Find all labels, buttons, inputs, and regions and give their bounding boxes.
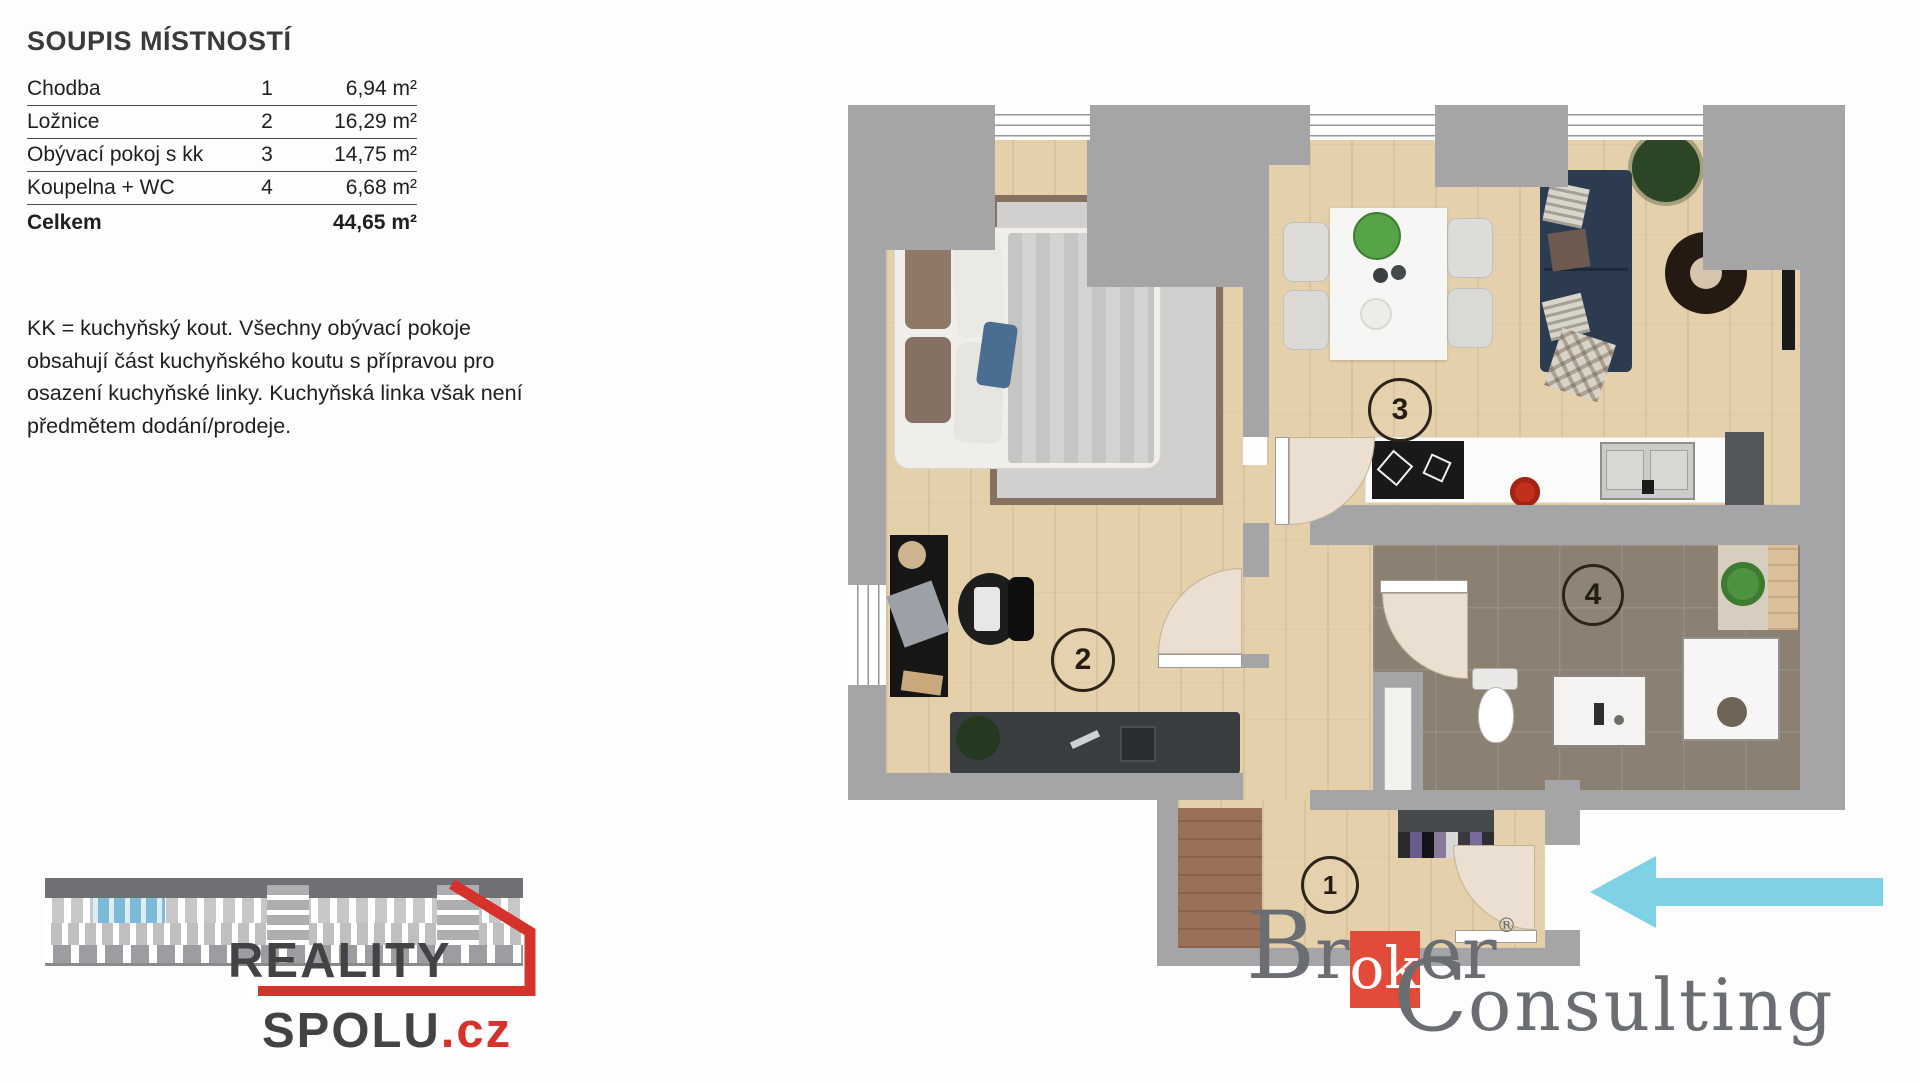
note-line: osazení kuchyňské linky. Kuchyňská linka… (27, 377, 523, 410)
bottle (1594, 703, 1604, 725)
kk-note: KK = kuchyňský kout. Všechny obývací pok… (27, 312, 523, 442)
sideboard (950, 712, 1240, 774)
house-outline-icon (440, 872, 545, 998)
soap (1614, 715, 1624, 725)
spolu-wordmark: SPOLU.cz (262, 1003, 512, 1059)
bathroom-vanity (1552, 675, 1647, 747)
dining-chair (1283, 290, 1329, 350)
clothes-item (1398, 832, 1410, 858)
building-blue-windows (93, 898, 165, 923)
room-name: Chodba (27, 77, 222, 101)
burner (1422, 453, 1451, 482)
table-total-row: Celkem 44,65 m² (27, 205, 417, 241)
bath-bench (1768, 542, 1798, 630)
room-label-bathroom: 4 (1562, 564, 1624, 626)
total-area: 44,65 m² (222, 211, 417, 235)
clothes-item (1422, 832, 1434, 858)
room-label-living: 3 (1368, 378, 1432, 442)
sofa (1540, 170, 1632, 372)
note-line: KK = kuchyňský kout. Všechny obývací pok… (27, 312, 523, 345)
reality-wordmark: REALITY (228, 933, 452, 989)
dining-chair (1447, 288, 1493, 348)
consulting-wordmark: Consulting (1393, 948, 1835, 1047)
floorplan-sheet: SOUPIS MÍSTNOSTÍ Chodba 1 6,94 m² Ložnic… (0, 0, 1920, 1083)
desk-lamp (898, 541, 926, 569)
door-leaf (1158, 654, 1242, 668)
plant-icon (956, 716, 1000, 760)
sink-basin (1650, 450, 1688, 490)
wall (1800, 105, 1845, 805)
page-title: SOUPIS MÍSTNOSTÍ (27, 26, 417, 57)
room-number: 3 (222, 143, 312, 167)
window (995, 105, 1090, 140)
cup (1373, 268, 1388, 283)
wall (1545, 780, 1580, 845)
shower-drain (1717, 697, 1747, 727)
table-row: Koupelna + WC 4 6,68 m² (27, 172, 417, 205)
entry-arrow-icon (1590, 850, 1885, 935)
room-name: Koupelna + WC (27, 176, 222, 200)
room-name: Obývací pokoj s kk (27, 143, 222, 167)
plant-icon (1721, 562, 1765, 606)
wall (1243, 165, 1269, 437)
wall (1157, 780, 1178, 966)
kitchen-sink (1600, 442, 1695, 500)
cup (1391, 265, 1406, 280)
wall (848, 773, 1243, 800)
toilet (1478, 687, 1514, 743)
room-area: 14,75 m² (312, 143, 417, 167)
desk (890, 535, 948, 697)
pillow (905, 243, 951, 329)
dining-chair (1447, 218, 1493, 278)
room-number: 2 (222, 110, 312, 134)
table-row: Ložnice 2 16,29 m² (27, 106, 417, 139)
room-area: 16,29 m² (312, 110, 417, 134)
throw-pillow (1548, 229, 1591, 272)
plate (1360, 298, 1392, 330)
wall (1310, 505, 1845, 545)
wall (1243, 105, 1310, 165)
window (1568, 105, 1703, 140)
door-leaf (1380, 580, 1468, 593)
flower-decor (1510, 477, 1540, 507)
room-area: 6,94 m² (312, 77, 417, 101)
room-number: 4 (222, 176, 312, 200)
clothes-item (1410, 832, 1422, 858)
burner (1377, 450, 1414, 487)
notebook (901, 670, 943, 695)
cz-tld: .cz (441, 1004, 512, 1058)
room-label-bedroom: 2 (1051, 628, 1115, 692)
note-line: obsahují část kuchyňského koutu s přípra… (27, 345, 523, 378)
pillow (905, 337, 951, 423)
wardrobe (1398, 808, 1494, 832)
wall (1242, 654, 1269, 668)
decor (1070, 730, 1100, 749)
laptop (886, 580, 950, 647)
wall (1435, 105, 1568, 187)
sink-basin (1606, 450, 1644, 490)
window (1310, 105, 1435, 140)
shower (1682, 637, 1780, 741)
tall-cabinet (1725, 432, 1764, 507)
total-label: Celkem (27, 211, 222, 235)
room-number: 1 (222, 77, 312, 101)
plant-icon (1632, 134, 1700, 202)
floorplan: 1 2 3 4 (690, 85, 1900, 985)
decor-tray (1120, 726, 1156, 762)
wall (1087, 105, 1243, 287)
dining-table (1330, 208, 1447, 360)
window (848, 585, 886, 685)
wall (848, 105, 886, 793)
note-line: předmětem dodání/prodeje. (27, 410, 523, 443)
table-row: Obývací pokoj s kk 3 14,75 m² (27, 139, 417, 172)
throw-pillow (1542, 181, 1589, 228)
wall (1243, 523, 1269, 577)
registered-mark: ® (1497, 913, 1517, 937)
clothes-item (1434, 832, 1446, 858)
table-row: Chodba 1 6,94 m² (27, 73, 417, 106)
door-leaf (1275, 437, 1289, 525)
dining-chair (1283, 222, 1329, 282)
reality-spolu-logo: REALITY SPOLU.cz (45, 875, 555, 1075)
shaft-niche (1384, 687, 1412, 795)
plant-icon (1353, 212, 1401, 260)
room-name: Ložnice (27, 110, 222, 134)
room-area: 6,68 m² (312, 176, 417, 200)
office-chair-seat (974, 587, 1000, 631)
room-list: SOUPIS MÍSTNOSTÍ Chodba 1 6,94 m² Ložnic… (27, 26, 417, 241)
cooktop (1372, 441, 1464, 499)
office-chair-back (1008, 577, 1034, 641)
faucet (1642, 480, 1654, 494)
